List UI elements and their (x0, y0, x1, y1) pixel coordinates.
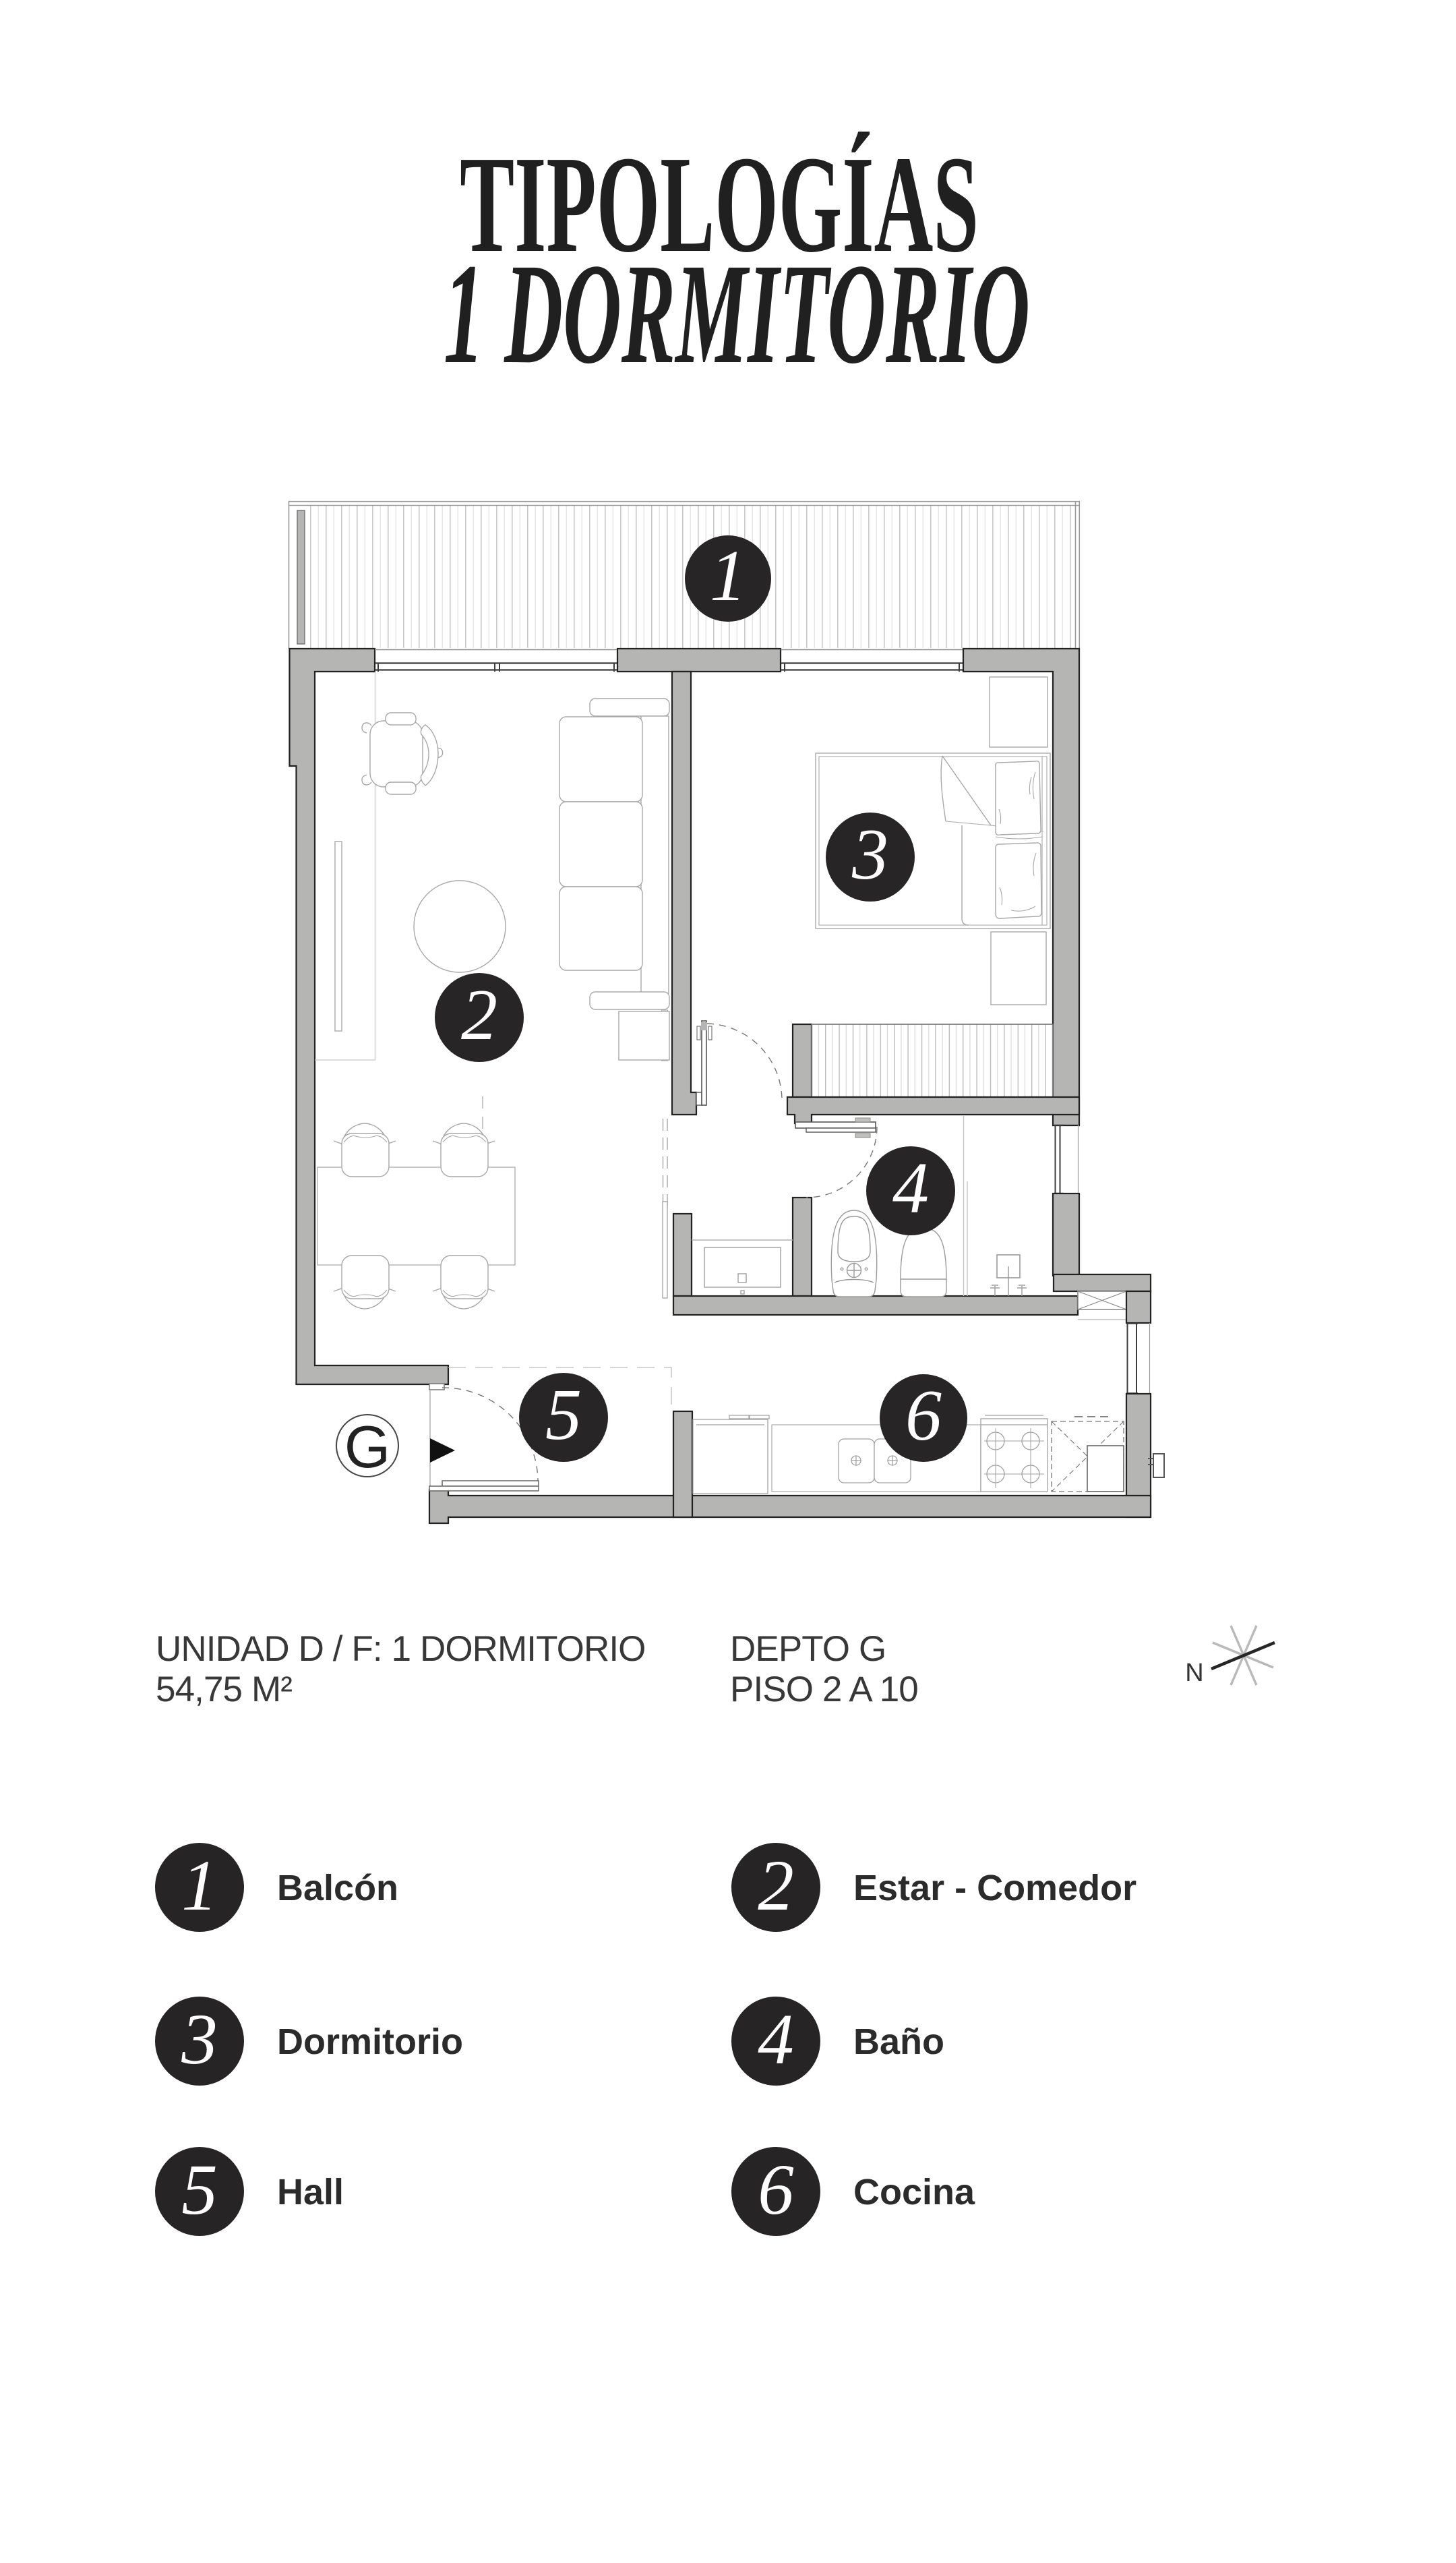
svg-text:2: 2 (758, 1846, 794, 1926)
svg-text:1: 1 (181, 1846, 218, 1926)
svg-text:Dormitorio: Dormitorio (277, 2022, 463, 2062)
svg-text:Baño: Baño (853, 2022, 944, 2062)
svg-text:3: 3 (181, 2000, 218, 2080)
svg-text:1: 1 (710, 536, 746, 616)
svg-text:Balcón: Balcón (277, 1868, 398, 1908)
svg-text:G: G (344, 1413, 390, 1480)
svg-text:1 DORMITORIO: 1 DORMITORIO (444, 233, 1030, 394)
svg-text:2: 2 (461, 975, 497, 1055)
svg-text:Cocina: Cocina (853, 2172, 975, 2212)
svg-text:6: 6 (905, 1376, 942, 1456)
svg-text:UNIDAD D / F: 1 DORMITORIO: UNIDAD D / F: 1 DORMITORIO (156, 1629, 646, 1669)
svg-text:DEPTO G: DEPTO G (730, 1629, 886, 1669)
svg-text:4: 4 (758, 2000, 794, 2080)
svg-text:Hall: Hall (277, 2172, 344, 2212)
svg-text:N: N (1185, 1659, 1203, 1687)
svg-text:5: 5 (181, 2150, 218, 2230)
svg-text:Estar - Comedor: Estar - Comedor (853, 1868, 1136, 1908)
svg-text:5: 5 (545, 1375, 582, 1455)
svg-text:4: 4 (892, 1148, 929, 1229)
svg-text:54,75 M²: 54,75 M² (156, 1670, 292, 1709)
svg-text:3: 3 (851, 815, 888, 895)
svg-text:6: 6 (758, 2150, 794, 2230)
svg-text:PISO 2 A 10: PISO 2 A 10 (730, 1670, 918, 1709)
